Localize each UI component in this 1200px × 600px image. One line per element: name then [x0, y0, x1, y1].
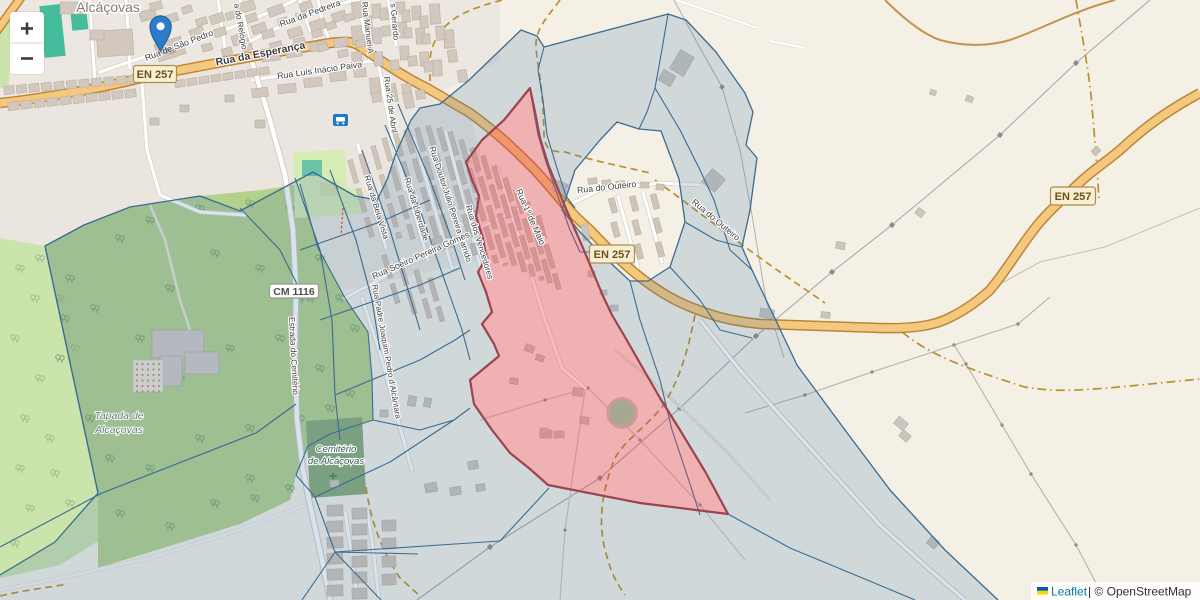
svg-text:EN 257: EN 257 [594, 249, 631, 261]
svg-text:CM 1116: CM 1116 [273, 286, 315, 298]
svg-text:Tapada de: Tapada de [94, 410, 143, 422]
svg-text:de Alcáçovas: de Alcáçovas [308, 456, 364, 467]
svg-text:Cemitério: Cemitério [316, 444, 357, 455]
svg-text:Alcáçovas: Alcáçovas [76, 0, 140, 15]
svg-text:Alcaçovas: Alcaçovas [94, 424, 144, 436]
svg-text:Leaflet: Leaflet [1051, 585, 1088, 599]
svg-text:EN 257: EN 257 [1055, 191, 1092, 203]
svg-text:EN 257: EN 257 [137, 69, 174, 81]
svg-text:| © OpenStreetMap: | © OpenStreetMap [1088, 585, 1192, 599]
